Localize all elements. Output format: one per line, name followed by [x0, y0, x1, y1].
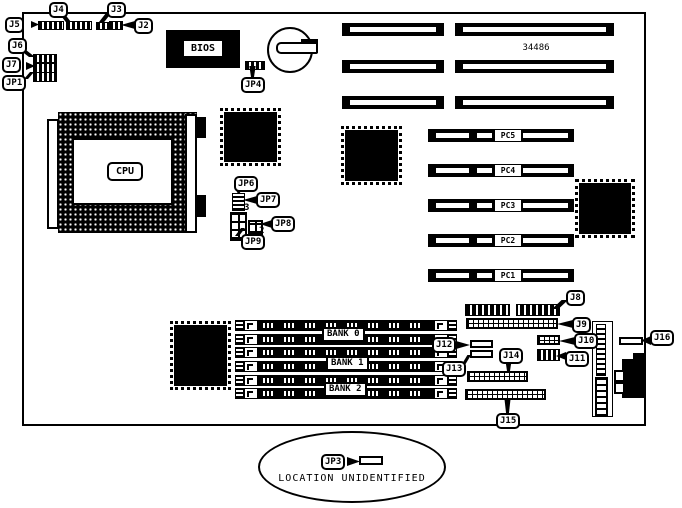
- isa-slot: [455, 96, 614, 109]
- jumper-block-j3: [96, 22, 109, 30]
- isa-slot: [342, 96, 444, 109]
- callout-j13: J13: [442, 361, 466, 377]
- jumper-block-jp1: [33, 72, 57, 82]
- note-text: LOCATION UNIDENTIFIED: [268, 473, 436, 485]
- keyboard-connector-tab: [614, 370, 625, 382]
- pc-slot: PC3: [428, 199, 574, 212]
- pc-slot: PC4: [428, 164, 574, 177]
- connector-j13: [470, 350, 493, 358]
- header-j10: [537, 335, 560, 345]
- pin-number-jp7: 3: [244, 204, 249, 213]
- isa-slot: [455, 60, 614, 73]
- header-j8: [465, 304, 560, 316]
- jumper-block-j4: [66, 21, 92, 30]
- callout-jp6: JP6: [234, 176, 258, 192]
- bank-label: BANK 1: [326, 356, 369, 371]
- pc-slot-label: PC5: [494, 129, 522, 142]
- callout-j14: J14: [499, 348, 523, 364]
- cpu-label: CPU: [107, 162, 143, 181]
- callout-j9: J9: [572, 317, 591, 333]
- callout-jp8: JP8: [271, 216, 295, 232]
- header-j11: [537, 349, 560, 361]
- callout-j2: J2: [134, 18, 153, 34]
- header-j14: [467, 371, 528, 382]
- pc-slot-label: PC4: [494, 164, 522, 177]
- connector-j16: [619, 337, 643, 345]
- cpu-socket-tab: [197, 117, 206, 138]
- note-ellipse: [258, 431, 446, 503]
- connector-j12: [470, 340, 493, 348]
- callout-j4: J4: [49, 2, 68, 18]
- cpu-socket-lever: [47, 119, 59, 229]
- battery-lever: [276, 42, 318, 54]
- jumper-block-j2: [109, 21, 123, 30]
- bank-label: BANK 2: [324, 382, 367, 397]
- cpu-socket-tab: [197, 195, 206, 217]
- callout-jp4: JP4: [241, 77, 265, 93]
- pc-slot: PC2: [428, 234, 574, 247]
- pc-slot-label: PC2: [494, 234, 522, 247]
- bios-label: BIOS: [184, 41, 222, 56]
- pc-slot-label: PC3: [494, 199, 522, 212]
- header-j9: [466, 318, 558, 329]
- callout-jp1: JP1: [2, 75, 26, 91]
- isa-slot: [342, 23, 444, 36]
- callout-j16: J16: [650, 330, 674, 346]
- pc-slot: PC5: [428, 129, 574, 142]
- qfp-chip: [174, 325, 227, 386]
- callout-j15: J15: [496, 413, 520, 429]
- callout-j5: J5: [5, 17, 24, 33]
- callout-j10: J10: [574, 333, 598, 349]
- bios-chip: BIOS: [166, 30, 240, 68]
- qfp-chip: [224, 112, 277, 162]
- jumper-block-j5: [38, 21, 64, 30]
- pc-slot: PC1: [428, 269, 574, 282]
- jumper-block-j6: [33, 54, 57, 63]
- callout-j12: J12: [432, 337, 456, 353]
- isa-slot: [455, 23, 614, 36]
- keyboard-connector-step: [633, 353, 646, 360]
- callout-j11: J11: [565, 351, 589, 367]
- motherboard-diagram: BIOS 34486 CPU 3 2 PC5 PC4 PC3 PC2: [0, 0, 682, 508]
- bank-label: BANK 0: [322, 327, 365, 342]
- callout-j8: J8: [566, 290, 585, 306]
- pin-number-jp8: 2: [259, 227, 264, 236]
- part-number: 34486: [506, 43, 566, 53]
- callout-j7: J7: [2, 57, 21, 73]
- callout-jp7: JP7: [256, 192, 280, 208]
- keyboard-connector: [622, 359, 646, 398]
- keyboard-connector-tab: [614, 382, 625, 394]
- isa-slot: [342, 60, 444, 73]
- callout-jp3: JP3: [321, 454, 345, 470]
- connector-jp3: [359, 456, 383, 465]
- cpu-socket-bar: [185, 114, 197, 233]
- pc-slot-label: PC1: [494, 269, 522, 282]
- callout-j6: J6: [8, 38, 27, 54]
- qfp-chip: [345, 130, 398, 181]
- callout-jp9: JP9: [241, 234, 265, 250]
- qfp-chip: [579, 183, 631, 234]
- callout-j3: J3: [107, 2, 126, 18]
